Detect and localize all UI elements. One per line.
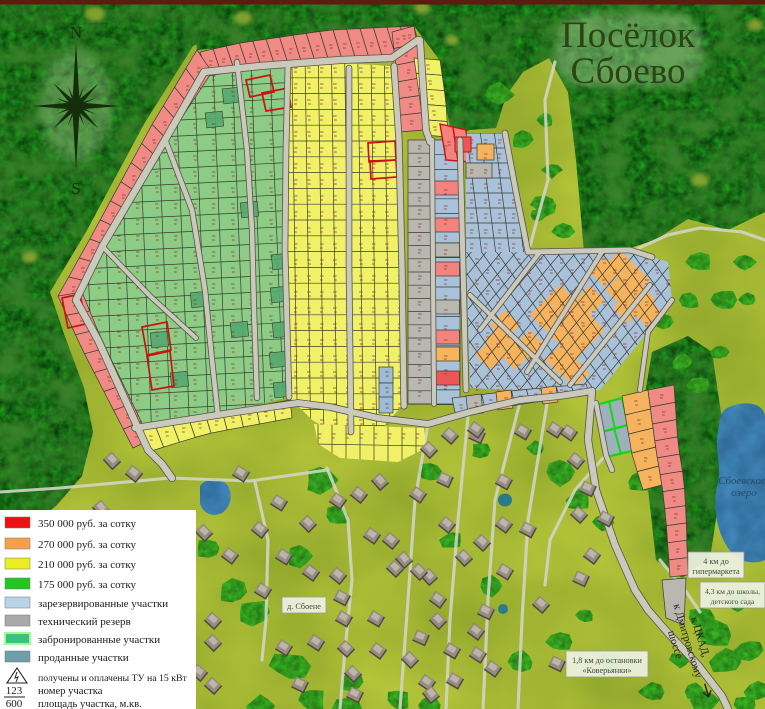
svg-text:д. Сбоене: д. Сбоене — [287, 602, 321, 611]
svg-text:проданные участки: проданные участки — [38, 652, 129, 664]
svg-text:S: S — [71, 179, 80, 198]
svg-text:600: 600 — [6, 698, 23, 709]
svg-text:4,3 км до школы,: 4,3 км до школы, — [705, 587, 760, 596]
svg-text:Сбоевское: Сбоевское — [718, 475, 765, 487]
svg-text:123: 123 — [6, 685, 23, 697]
svg-text:получены и оплачены ТУ на 15 к: получены и оплачены ТУ на 15 кВт — [38, 673, 188, 684]
svg-text:Сбоево: Сбоево — [570, 51, 685, 92]
svg-text:детского сада: детского сада — [711, 597, 755, 606]
svg-text:забронированные участки: забронированные участки — [38, 634, 160, 646]
svg-text:210 000 руб. за сотку: 210 000 руб. за сотку — [38, 559, 137, 571]
svg-text:4 км до: 4 км до — [703, 557, 729, 566]
svg-text:гипермаркета: гипермаркета — [692, 567, 740, 576]
svg-text:зарезервированные участки: зарезервированные участки — [38, 598, 168, 610]
svg-text:технический резерв: технический резерв — [38, 616, 131, 628]
svg-text:175 000 руб. за сотку: 175 000 руб. за сотку — [38, 579, 137, 591]
svg-text:1,8 км до остановки: 1,8 км до остановки — [572, 656, 642, 665]
svg-text:350 000 руб. за сотку: 350 000 руб. за сотку — [38, 518, 137, 530]
svg-text:Посёлок: Посёлок — [561, 15, 696, 56]
svg-text:номер участка: номер участка — [38, 686, 103, 697]
svg-text:270 000 руб. за сотку: 270 000 руб. за сотку — [38, 539, 137, 551]
svg-text:озеро: озеро — [731, 487, 757, 499]
svg-text:«Коверьянки»: «Коверьянки» — [582, 666, 631, 675]
svg-text:N: N — [70, 23, 82, 42]
svg-text:площадь участка, м.кв.: площадь участка, м.кв. — [38, 699, 142, 709]
